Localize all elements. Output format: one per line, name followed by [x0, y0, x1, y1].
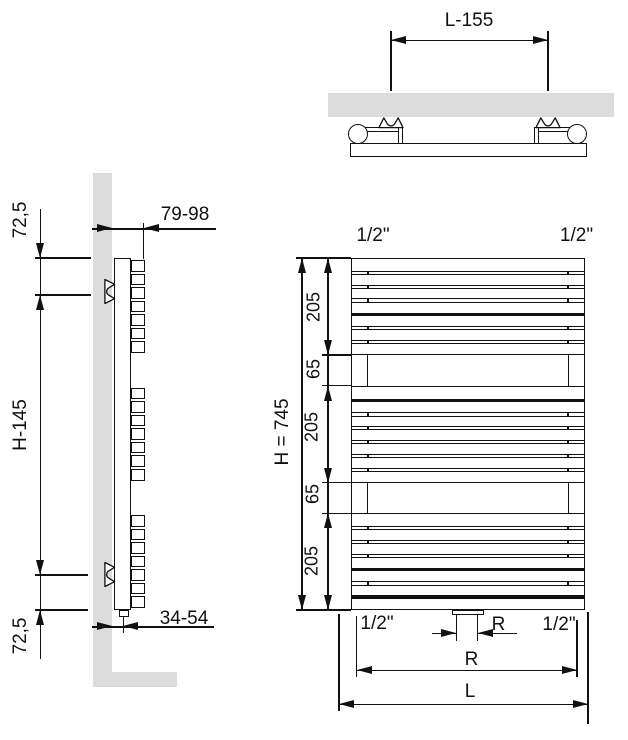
reference-tick	[296, 257, 351, 258]
tube-separator	[352, 285, 584, 289]
dim-line-segments	[327, 258, 328, 610]
arrowhead-left	[357, 666, 372, 674]
tube-cross-section	[131, 442, 145, 454]
tube-cross-section	[131, 542, 145, 554]
dim-label-center-conn: R	[492, 614, 506, 636]
collector-strip-right	[568, 483, 585, 514]
collector-edge-tick	[367, 441, 368, 443]
collector-edge-tick	[367, 341, 368, 343]
dim-label-conn-top-left: 1/2"	[356, 225, 389, 247]
reference-tick	[322, 385, 351, 386]
bracket-clip-upper-icon	[104, 278, 115, 304]
arrowhead-left	[391, 36, 406, 44]
collector-edge-tick	[567, 469, 568, 471]
tube-separator	[352, 581, 584, 585]
dim-label-l155: L-155	[445, 10, 494, 32]
tube-separator	[352, 595, 584, 599]
arrowhead-down	[324, 340, 332, 355]
dim-label-bracket-span: H-145	[10, 399, 32, 451]
arrowhead-down	[36, 560, 44, 575]
dim-label-conn-bottom-right: 1/2"	[542, 614, 575, 636]
arrowhead-up	[324, 386, 332, 401]
bracket-clip-left-icon	[378, 117, 404, 128]
tube-cross-section	[131, 328, 145, 340]
reference-tick	[322, 482, 351, 483]
bracket-clip-lower-icon	[104, 561, 115, 587]
dim-label-pipe-offset: 34-54	[160, 608, 209, 630]
arrowhead-up	[36, 295, 44, 310]
tube-cross-section	[131, 596, 145, 608]
arrowhead-left	[123, 622, 138, 630]
arrowhead-left	[144, 224, 159, 232]
collector-edge-tick	[567, 413, 568, 415]
arrowhead-left	[478, 629, 493, 637]
dim-label-depth: 79-98	[161, 204, 210, 226]
dim-label-segment-2: 65	[304, 359, 325, 379]
collector-edge-tick	[567, 582, 568, 584]
arrowhead-down	[36, 243, 44, 258]
bracket-clip-right-icon	[535, 117, 561, 128]
collector-edge-tick	[567, 341, 568, 343]
arrowhead-up	[298, 258, 306, 273]
tube-separator	[352, 568, 584, 572]
tube-cross-section	[131, 529, 145, 541]
collector-edge-tick	[567, 455, 568, 457]
collector-edge-tick	[567, 327, 568, 329]
bracket-arm-right-vertical	[534, 128, 539, 143]
collector-strip-left	[351, 355, 368, 386]
collector-edge-tick	[367, 427, 368, 429]
tube-separator	[352, 399, 584, 403]
dim-line-vertical	[40, 209, 41, 659]
collector-edge-tick	[367, 413, 368, 415]
dim-label-segment-4: 65	[303, 484, 324, 504]
collector-edge-tick	[367, 541, 368, 543]
dim-label-bottom-offset: 72,5	[10, 618, 32, 655]
tube-cross-section	[131, 401, 145, 413]
arrowhead-right	[533, 36, 548, 44]
tube-cross-section	[131, 388, 145, 400]
radiator-panel-top-view	[350, 143, 587, 157]
tube-cross-section	[131, 341, 145, 353]
collector-edge-tick	[367, 555, 368, 557]
dim-label-segment-5: 205	[302, 546, 323, 576]
tube-separator	[352, 271, 584, 275]
tube-cross-section	[131, 274, 145, 286]
collector-gap	[351, 355, 585, 386]
collector-edge-tick	[367, 527, 368, 529]
dim-label-top-offset: 72,5	[10, 202, 32, 239]
dim-label-segment-3: 205	[302, 412, 323, 442]
collector-tube-right-top-view	[567, 124, 587, 144]
dim-line-length	[339, 704, 588, 705]
collector-edge-tick	[367, 286, 368, 288]
tube-section	[351, 513, 585, 610]
collector-edge-tick	[367, 272, 368, 274]
tube-separator	[352, 526, 584, 530]
collector-edge-tick	[567, 427, 568, 429]
arrowhead-down	[324, 595, 332, 610]
collector-gap	[351, 483, 585, 514]
collector-strip-right	[568, 355, 585, 386]
arrowhead-up	[324, 513, 332, 528]
tube-cross-section	[131, 515, 145, 527]
dim-line-l155	[391, 40, 548, 41]
collector-edge-tick	[567, 555, 568, 557]
tube-separator	[352, 298, 584, 302]
radiator-dimension-drawing: L-155 72,5 H-145 72,5	[0, 0, 628, 740]
tube-separator	[352, 540, 584, 544]
arrowhead-right	[97, 622, 112, 630]
collector-edge-tick	[367, 327, 368, 329]
arrowhead-down	[324, 468, 332, 483]
collector-edge-tick	[367, 455, 368, 457]
collector-edge-tick	[367, 469, 368, 471]
wall-strip-top-view	[328, 93, 614, 117]
tube-cross-section	[131, 583, 145, 595]
tube-separator	[352, 554, 584, 558]
collector-edge-tick	[567, 299, 568, 301]
collector-edge-tick	[367, 299, 368, 301]
dim-label-segment-1: 205	[304, 292, 325, 322]
tube-cross-section	[131, 556, 145, 568]
tube-separator	[352, 454, 584, 458]
reference-tick	[296, 609, 351, 610]
tube-separator	[352, 326, 584, 330]
tube-separator	[352, 468, 584, 472]
arrowhead-right	[441, 629, 456, 637]
tube-cross-section	[131, 569, 145, 581]
arrowhead-right	[97, 224, 112, 232]
collector-strip-left	[351, 483, 368, 514]
arrowhead-right	[573, 700, 588, 708]
tube-cross-section	[131, 260, 145, 272]
arrowhead-up	[324, 258, 332, 273]
reference-tick	[322, 354, 351, 355]
tube-section	[351, 386, 585, 483]
tube-cross-section	[131, 415, 145, 427]
collector-edge-tick	[367, 582, 368, 584]
wall-strip-side-view	[93, 173, 112, 687]
tube-separator	[352, 340, 584, 344]
tube-cross-section	[131, 301, 145, 313]
radiator-body-front-view	[351, 258, 585, 610]
dim-label-total-height: H = 745	[272, 398, 294, 465]
arrowhead-right	[562, 666, 577, 674]
extension-line	[338, 614, 339, 711]
floor-strip-side-view	[112, 672, 178, 688]
collector-edge-tick	[567, 272, 568, 274]
tube-separator	[352, 440, 584, 444]
collector-tube-left-top-view	[348, 124, 368, 144]
dim-label-conn-span: R	[465, 649, 479, 671]
tube-cross-section	[131, 314, 145, 326]
collector-tube-side-view	[114, 258, 131, 610]
tube-separator	[352, 426, 584, 430]
reference-tick	[322, 513, 351, 514]
dim-label-length: L	[465, 681, 476, 703]
arrowhead-up	[36, 610, 44, 625]
dim-label-conn-top-right: 1/2"	[560, 225, 593, 247]
collector-edge-tick	[567, 527, 568, 529]
tube-cross-section	[131, 428, 145, 440]
tube-cross-section	[131, 455, 145, 467]
tube-separator	[352, 412, 584, 416]
tube-separator	[352, 313, 584, 317]
arrowhead-left	[339, 700, 354, 708]
tube-cross-section	[131, 469, 145, 481]
tube-section	[351, 258, 585, 355]
collector-edge-tick	[567, 286, 568, 288]
collector-edge-tick	[567, 541, 568, 543]
dim-label-conn-bottom-left: 1/2"	[360, 613, 393, 635]
tube-cross-section	[131, 287, 145, 299]
bracket-arm-left-vertical	[398, 128, 403, 143]
collector-edge-tick	[567, 441, 568, 443]
arrowhead-down	[298, 595, 306, 610]
